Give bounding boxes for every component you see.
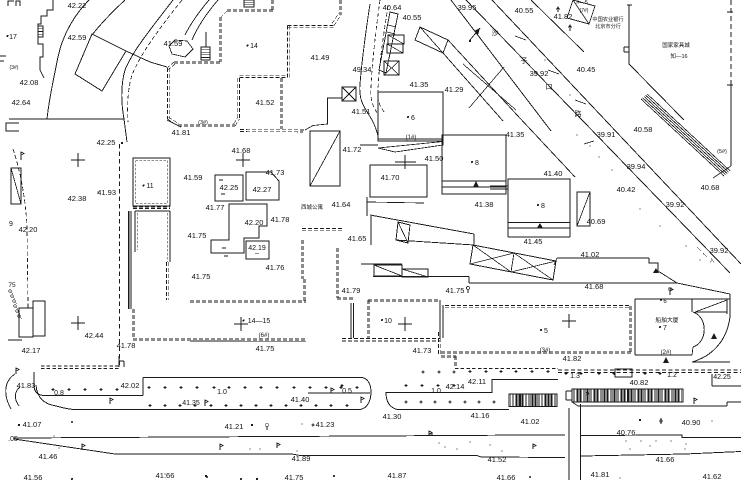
- svg-text:0.8: 0.8: [54, 390, 64, 397]
- svg-text:7: 7: [663, 325, 667, 332]
- svg-text:17: 17: [9, 34, 17, 41]
- svg-text:40.90: 40.90: [682, 418, 701, 427]
- svg-text:42.64: 42.64: [12, 98, 31, 107]
- svg-text:42.02: 42.02: [121, 381, 140, 390]
- svg-text:10: 10: [384, 318, 392, 325]
- svg-text:40.42: 40.42: [617, 185, 636, 194]
- svg-text:40.69: 40.69: [587, 217, 606, 226]
- svg-text:41.30: 41.30: [383, 412, 402, 421]
- svg-text:(1#): (1#): [406, 135, 417, 141]
- svg-text:40.55: 40.55: [403, 13, 422, 22]
- svg-text:5: 5: [544, 328, 548, 335]
- svg-text:41.02: 41.02: [521, 417, 540, 426]
- svg-text:42.38: 42.38: [68, 194, 87, 203]
- svg-text:41.49: 41.49: [311, 53, 330, 62]
- svg-text:14: 14: [250, 43, 258, 50]
- svg-text:41.02: 41.02: [581, 250, 600, 259]
- svg-text:41.35: 41.35: [410, 80, 429, 89]
- svg-text:39.92: 39.92: [666, 200, 685, 209]
- svg-text:41.52: 41.52: [488, 455, 507, 464]
- svg-text:41.81: 41.81: [591, 470, 610, 479]
- svg-text:41.75: 41.75: [285, 473, 304, 480]
- svg-text:41.83: 41.83: [17, 381, 36, 390]
- svg-text:41.35: 41.35: [506, 130, 525, 139]
- svg-text:42.44: 42.44: [85, 331, 104, 340]
- svg-text:40.82: 40.82: [630, 378, 649, 387]
- svg-text:6: 6: [411, 115, 415, 122]
- svg-text:41.82: 41.82: [554, 12, 573, 21]
- svg-text:41.73: 41.73: [413, 346, 432, 355]
- svg-text:40.58: 40.58: [634, 125, 653, 134]
- svg-text:41.70: 41.70: [381, 173, 400, 182]
- svg-text:41.65: 41.65: [348, 234, 367, 243]
- svg-text:子: 子: [521, 57, 528, 65]
- svg-text:39.92: 39.92: [530, 69, 549, 78]
- svg-text:41.21: 41.21: [225, 422, 244, 431]
- svg-text:1.3: 1.3: [570, 373, 580, 380]
- svg-text:(3#): (3#): [198, 120, 208, 126]
- svg-text:41.66: 41.66: [156, 471, 175, 480]
- svg-text:(3#): (3#): [540, 348, 551, 354]
- svg-text:41.29: 41.29: [445, 85, 464, 94]
- svg-text:41.62: 41.62: [703, 472, 722, 480]
- svg-text:40.68: 40.68: [701, 183, 720, 192]
- svg-text:42.22: 42.22: [68, 1, 87, 10]
- svg-text:41.46: 41.46: [39, 452, 58, 461]
- svg-text:41.81: 41.81: [172, 128, 191, 137]
- svg-text:41.82: 41.82: [563, 354, 582, 363]
- svg-text:41.66: 41.66: [656, 455, 675, 464]
- svg-text:8: 8: [541, 203, 545, 210]
- svg-text:41.40: 41.40: [291, 395, 310, 404]
- svg-text:1.2: 1.2: [667, 372, 677, 379]
- svg-text:41.75: 41.75: [188, 231, 207, 240]
- svg-text:41.78: 41.78: [117, 341, 136, 350]
- svg-text:41.77: 41.77: [206, 203, 225, 212]
- svg-text:41.75: 41.75: [446, 286, 465, 295]
- svg-text:1.0: 1.0: [431, 388, 441, 395]
- svg-text:(5#): (5#): [717, 149, 727, 155]
- svg-text:41.68: 41.68: [585, 282, 604, 291]
- svg-text:41.52: 41.52: [256, 98, 275, 107]
- svg-text:41.75: 41.75: [192, 272, 211, 281]
- svg-text:(6#): (6#): [259, 333, 270, 339]
- svg-text:42.59: 42.59: [68, 33, 87, 42]
- svg-text:41.76: 41.76: [266, 263, 285, 272]
- svg-text:0.5: 0.5: [342, 388, 352, 395]
- svg-text:11: 11: [146, 183, 153, 190]
- svg-text:沙: 沙: [492, 29, 499, 37]
- svg-text:(2#): (2#): [661, 350, 672, 356]
- svg-text:北京市分行: 北京市分行: [595, 22, 621, 30]
- svg-text:(3#): (3#): [10, 65, 19, 71]
- svg-text:41.64: 41.64: [332, 200, 351, 209]
- svg-text:39.94: 39.94: [627, 162, 646, 171]
- svg-text:船舶大厦: 船舶大厦: [655, 316, 678, 324]
- svg-text:42.25: 42.25: [97, 138, 116, 147]
- svg-text:41.68: 41.68: [232, 146, 251, 155]
- svg-text:(7#): (7#): [580, 8, 589, 14]
- svg-text:41.35: 41.35: [182, 400, 200, 407]
- svg-text:41.72: 41.72: [343, 145, 362, 154]
- svg-text:41.50: 41.50: [425, 154, 444, 163]
- svg-text:42.11: 42.11: [468, 377, 486, 386]
- svg-text:14—15: 14—15: [248, 318, 271, 325]
- svg-text:口: 口: [546, 83, 553, 91]
- svg-text:40.64: 40.64: [383, 3, 402, 12]
- svg-text:42.20: 42.20: [245, 218, 264, 227]
- svg-text:8: 8: [475, 160, 479, 167]
- svg-text:41.78: 41.78: [271, 215, 290, 224]
- svg-text:41.23: 41.23: [316, 420, 335, 429]
- svg-text:41.56: 41.56: [24, 473, 43, 480]
- svg-text:41.73: 41.73: [266, 168, 285, 177]
- svg-text:42.17: 42.17: [22, 346, 41, 355]
- svg-text:知—16: 知—16: [670, 52, 687, 60]
- svg-text:42.14: 42.14: [446, 382, 465, 391]
- svg-text:39.91: 39.91: [597, 130, 616, 139]
- svg-text:42.25: 42.25: [713, 374, 731, 381]
- svg-text:国家家具城: 国家家具城: [662, 41, 690, 49]
- svg-text:西城公寓: 西城公寓: [301, 203, 324, 211]
- svg-text:9: 9: [9, 221, 13, 228]
- svg-text:中国农业银行: 中国农业银行: [592, 15, 623, 23]
- svg-text:41.66: 41.66: [497, 473, 516, 480]
- svg-text:40.76: 40.76: [617, 428, 636, 437]
- svg-text:路: 路: [575, 109, 582, 118]
- svg-text:42.25: 42.25: [220, 183, 239, 192]
- svg-text:41.75: 41.75: [256, 344, 275, 353]
- svg-text:42.20: 42.20: [19, 225, 38, 234]
- svg-text:42.19: 42.19: [248, 245, 266, 252]
- svg-text:75: 75: [8, 282, 16, 289]
- svg-text:42.08: 42.08: [20, 78, 39, 87]
- svg-text:入: 入: [709, 258, 714, 264]
- svg-text:39.92: 39.92: [710, 246, 729, 255]
- svg-text:.05: .05: [8, 436, 18, 443]
- svg-text:40.55: 40.55: [515, 6, 534, 15]
- svg-text:41.93: 41.93: [97, 188, 116, 197]
- svg-text:1.0: 1.0: [217, 389, 227, 396]
- svg-text:41.40: 41.40: [544, 169, 563, 178]
- svg-text:41.59: 41.59: [184, 173, 203, 182]
- svg-text:41.38: 41.38: [475, 200, 494, 209]
- svg-text:41.45: 41.45: [524, 237, 543, 246]
- svg-text:#—5: #—5: [576, 0, 588, 6]
- svg-text:41.89: 41.89: [292, 454, 311, 463]
- svg-text:41.07: 41.07: [23, 420, 42, 429]
- svg-text:41.79: 41.79: [342, 286, 361, 295]
- svg-text:41.87: 41.87: [388, 471, 407, 480]
- svg-text:40.45: 40.45: [577, 65, 596, 74]
- svg-text:42.27: 42.27: [253, 185, 272, 194]
- svg-text:41.51: 41.51: [352, 107, 371, 116]
- svg-text:41.16: 41.16: [471, 411, 490, 420]
